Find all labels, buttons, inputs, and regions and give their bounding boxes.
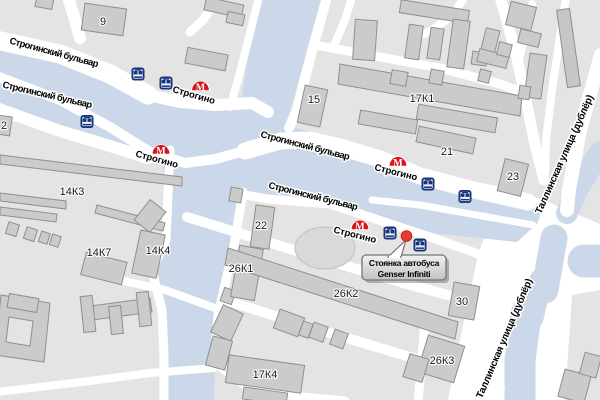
svg-text:17К4: 17К4 [253,369,278,381]
svg-text:14К7: 14К7 [87,247,112,259]
svg-text:2: 2 [1,120,7,132]
svg-text:Genser Infiniti: Genser Infiniti [378,269,431,279]
svg-text:30: 30 [456,296,468,308]
svg-text:14К4: 14К4 [146,245,171,257]
svg-text:14К3: 14К3 [60,186,85,198]
svg-text:22: 22 [255,220,267,232]
svg-text:17К1: 17К1 [410,93,435,105]
svg-text:15: 15 [308,94,320,106]
svg-text:Стоянка автобуса: Стоянка автобуса [369,258,440,268]
svg-text:21: 21 [441,146,453,158]
svg-text:26К3: 26К3 [430,355,455,367]
svg-text:26К2: 26К2 [334,288,359,300]
svg-text:23: 23 [507,171,519,183]
svg-text:9: 9 [100,16,106,28]
svg-text:26К1: 26К1 [229,263,254,275]
